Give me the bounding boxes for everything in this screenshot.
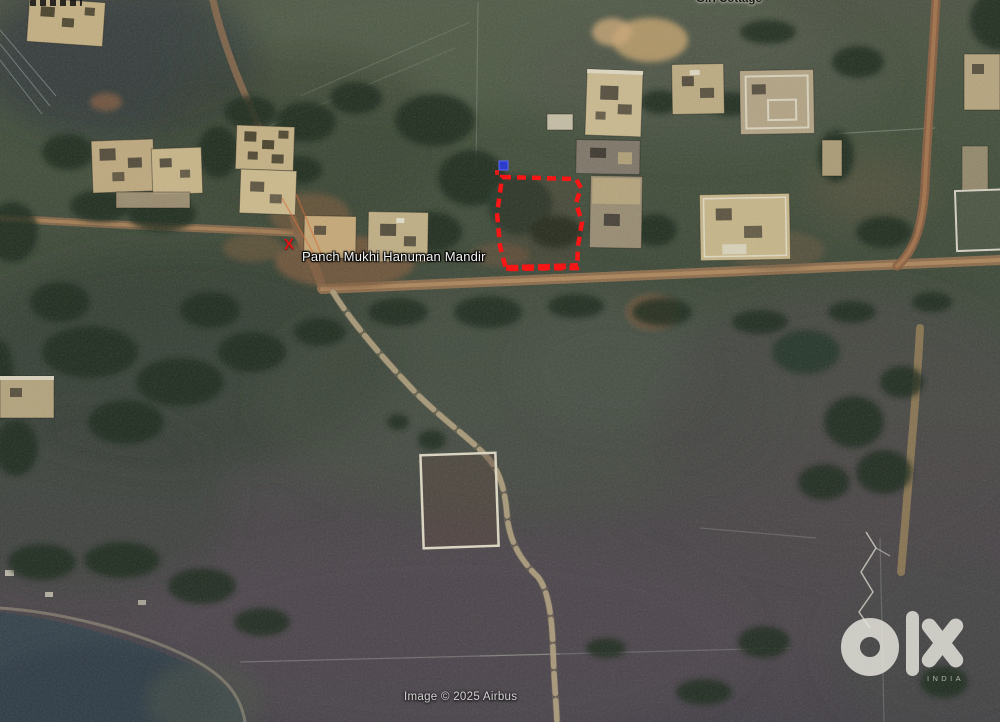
olx-logo-glyphs: INDIA (830, 598, 975, 690)
olx-x-glyph (919, 616, 967, 671)
olx-bar-glyph (906, 611, 919, 676)
clipped-label-artifact (30, 0, 82, 6)
imagery-attribution: Image © 2025 Airbus (404, 691, 517, 703)
olx-region-text: INDIA (927, 674, 964, 683)
place-label-cottage: Giri Cottage (696, 0, 762, 5)
olx-logo: olx INDIA (830, 598, 975, 690)
satellite-map-image: Giri Cottage X Panch Mukhi Hanuman Mandi… (0, 0, 1000, 722)
x-marker-icon: X (283, 237, 294, 253)
place-label-mandir: Panch Mukhi Hanuman Mandir (302, 249, 486, 264)
olx-o-glyph (851, 628, 890, 667)
